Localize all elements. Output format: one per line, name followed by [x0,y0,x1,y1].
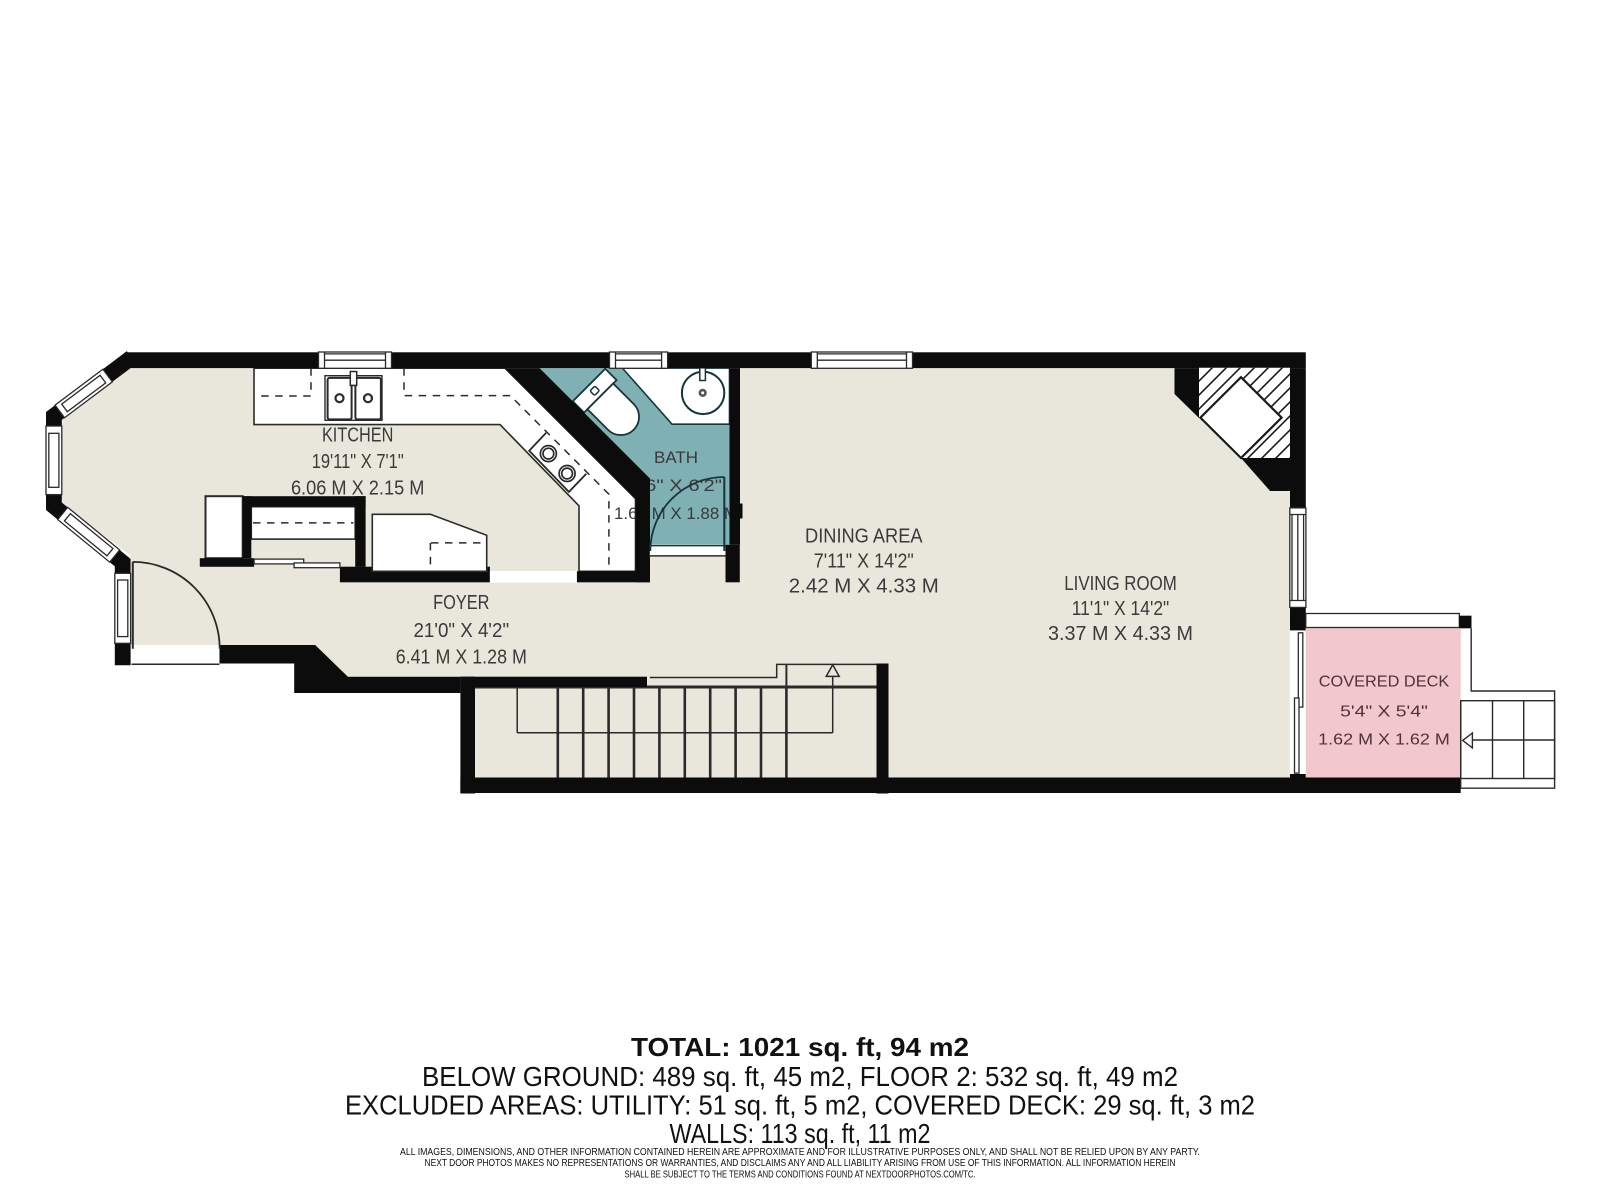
svg-text:6.41 M X 1.28 M: 6.41 M X 1.28 M [396,647,527,669]
svg-text:19'11" X 7'1": 19'11" X 7'1" [312,451,404,473]
svg-text:KITCHEN: KITCHEN [322,425,394,447]
svg-text:NEXT DOOR PHOTOS MAKES NO REPR: NEXT DOOR PHOTOS MAKES NO REPRESENTATION… [425,1157,1176,1169]
svg-text:TOTAL: 1021 sq. ft, 94 m2: TOTAL: 1021 sq. ft, 94 m2 [631,1032,969,1062]
svg-text:LIVING ROOM: LIVING ROOM [1064,573,1177,595]
svg-text:6.06 M X 2.15 M: 6.06 M X 2.15 M [291,478,425,500]
svg-text:DINING AREA: DINING AREA [805,526,923,548]
svg-text:BELOW GROUND: 489 sq. ft, 45 m: BELOW GROUND: 489 sq. ft, 45 m2, FLOOR 2… [422,1061,1178,1092]
svg-text:BATH: BATH [654,449,698,467]
svg-text:21'0" X 4'2": 21'0" X 4'2" [414,620,510,642]
svg-text:SHALL BE SUBJECT TO THE TERMS: SHALL BE SUBJECT TO THE TERMS AND CONDIT… [625,1169,976,1181]
svg-text:WALLS: 113 sq. ft, 11 m2: WALLS: 113 sq. ft, 11 m2 [670,1118,931,1149]
svg-text:7'11" X 14'2": 7'11" X 14'2" [814,551,914,573]
svg-text:3.37 M X 4.33 M: 3.37 M X 4.33 M [1048,623,1193,645]
svg-text:1.62 M X 1.62 M: 1.62 M X 1.62 M [1318,732,1450,749]
svg-text:FOYER: FOYER [433,592,489,614]
svg-text:EXCLUDED AREAS: UTILITY: 51 sq: EXCLUDED AREAS: UTILITY: 51 sq. ft, 5 m2… [345,1090,1255,1121]
svg-text:11'1" X 14'2": 11'1" X 14'2" [1072,598,1170,620]
svg-text:2.42 M X 4.33 M: 2.42 M X 4.33 M [789,576,939,598]
svg-text:1.66 M X 1.88 M: 1.66 M X 1.88 M [614,505,738,523]
svg-text:5'4" X 5'4": 5'4" X 5'4" [1340,703,1428,720]
svg-text:COVERED DECK: COVERED DECK [1319,674,1450,691]
